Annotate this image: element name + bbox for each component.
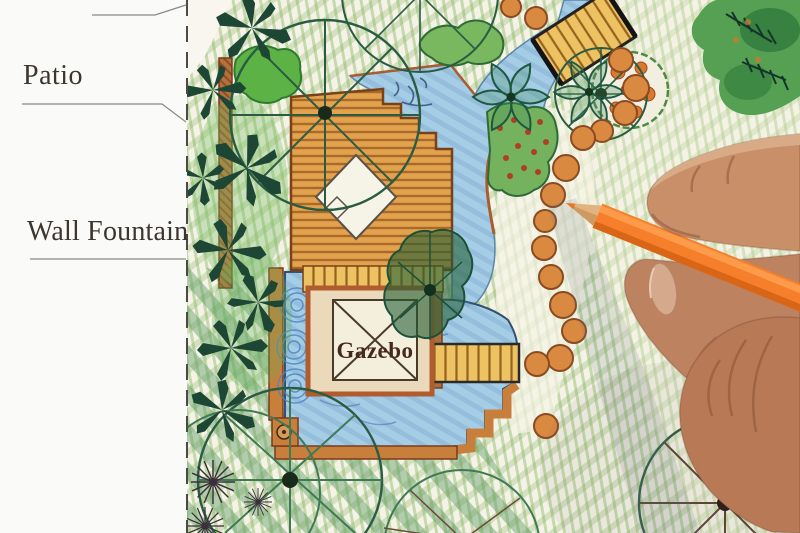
fountain-jet-dot (282, 430, 286, 434)
starburst-plant (244, 488, 272, 516)
stepping-stone (613, 101, 637, 125)
stepping-stone (525, 7, 547, 29)
landscape-plan-scene: Gazebo (0, 0, 800, 533)
stepping-stone (525, 352, 549, 376)
wall-fountain-label: Wall Fountain (27, 216, 188, 247)
starburst-plant (191, 460, 235, 504)
stepping-stone (501, 0, 521, 17)
photo-of-landscape-plan: Gazebo (0, 0, 800, 533)
stepping-stone (553, 155, 579, 181)
stepping-stone (547, 345, 573, 371)
plan-margin: Patio Wall Fountain (0, 0, 188, 533)
stepping-stone (550, 292, 576, 318)
gazebo-label: Gazebo (336, 338, 413, 363)
stepping-stone (539, 265, 563, 289)
pool-bottom-band (275, 446, 457, 459)
patio-label: Patio (23, 60, 83, 91)
stepping-stone (609, 48, 633, 72)
stepping-stone (571, 126, 595, 150)
stepping-stone (532, 236, 556, 260)
stepping-stone (623, 75, 649, 101)
tree-symbol (230, 20, 420, 210)
